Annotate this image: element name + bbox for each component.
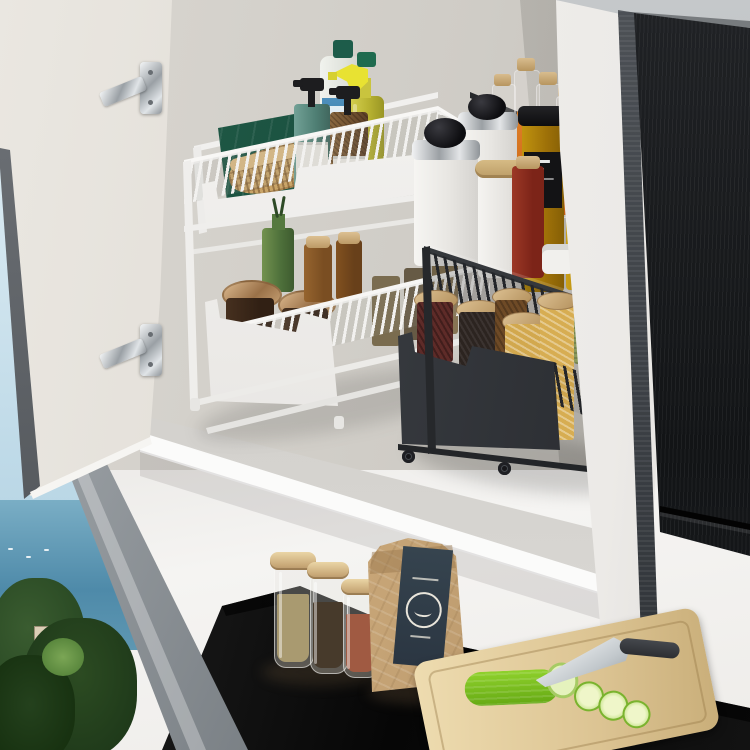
cork-cap	[338, 232, 360, 244]
wooden-jar-lid	[307, 562, 349, 579]
bag-round-emblem	[404, 591, 443, 630]
cork-spice-jar	[336, 240, 362, 300]
caster-wheel	[402, 450, 415, 463]
hinge-screw	[148, 70, 153, 75]
red-bean-jar	[417, 302, 453, 362]
spray-bottle-cap	[357, 52, 376, 67]
black-jar-lid	[518, 106, 566, 126]
emblem-mountain-mark	[414, 606, 432, 617]
pump-spout-amber	[329, 88, 339, 95]
canister-knob	[424, 118, 466, 148]
hinge-screw	[148, 362, 153, 367]
pump-head-teal	[300, 78, 324, 91]
glass-highlight	[279, 572, 282, 658]
cork-spice-jar	[304, 244, 332, 302]
canister-knob	[468, 94, 506, 120]
caster-wheel	[498, 462, 511, 475]
spray-bottle-nozzle	[328, 72, 337, 80]
bag-navy-label	[393, 546, 453, 668]
pump-spout-teal	[293, 80, 303, 87]
boat	[44, 549, 49, 551]
white-rack-foot	[334, 416, 344, 429]
glass-highlight	[314, 582, 317, 664]
label-text-line	[412, 577, 438, 581]
pump-stem-amber	[344, 98, 351, 115]
light-foliage	[42, 638, 84, 676]
pump-stem-teal	[308, 90, 315, 107]
bottle-cork	[539, 72, 557, 85]
cork-cap	[306, 236, 330, 248]
boat	[26, 556, 31, 558]
pump-head-amber	[336, 86, 360, 99]
bottle-cork	[494, 74, 511, 86]
red-jar-cork	[516, 156, 540, 169]
dish-soap-cap	[333, 40, 353, 58]
bottle-cork	[517, 58, 535, 71]
boat	[8, 548, 13, 550]
kitchen-product-scene	[0, 0, 750, 750]
white-rack-foot	[190, 398, 200, 411]
hinge-screw	[148, 332, 153, 337]
glass-highlight	[347, 597, 350, 669]
cucumber	[464, 669, 559, 707]
label-text-line	[410, 635, 430, 638]
red-spice-jar	[512, 166, 544, 278]
hinge-screw	[148, 100, 153, 105]
dark-seed-fill	[313, 602, 343, 668]
